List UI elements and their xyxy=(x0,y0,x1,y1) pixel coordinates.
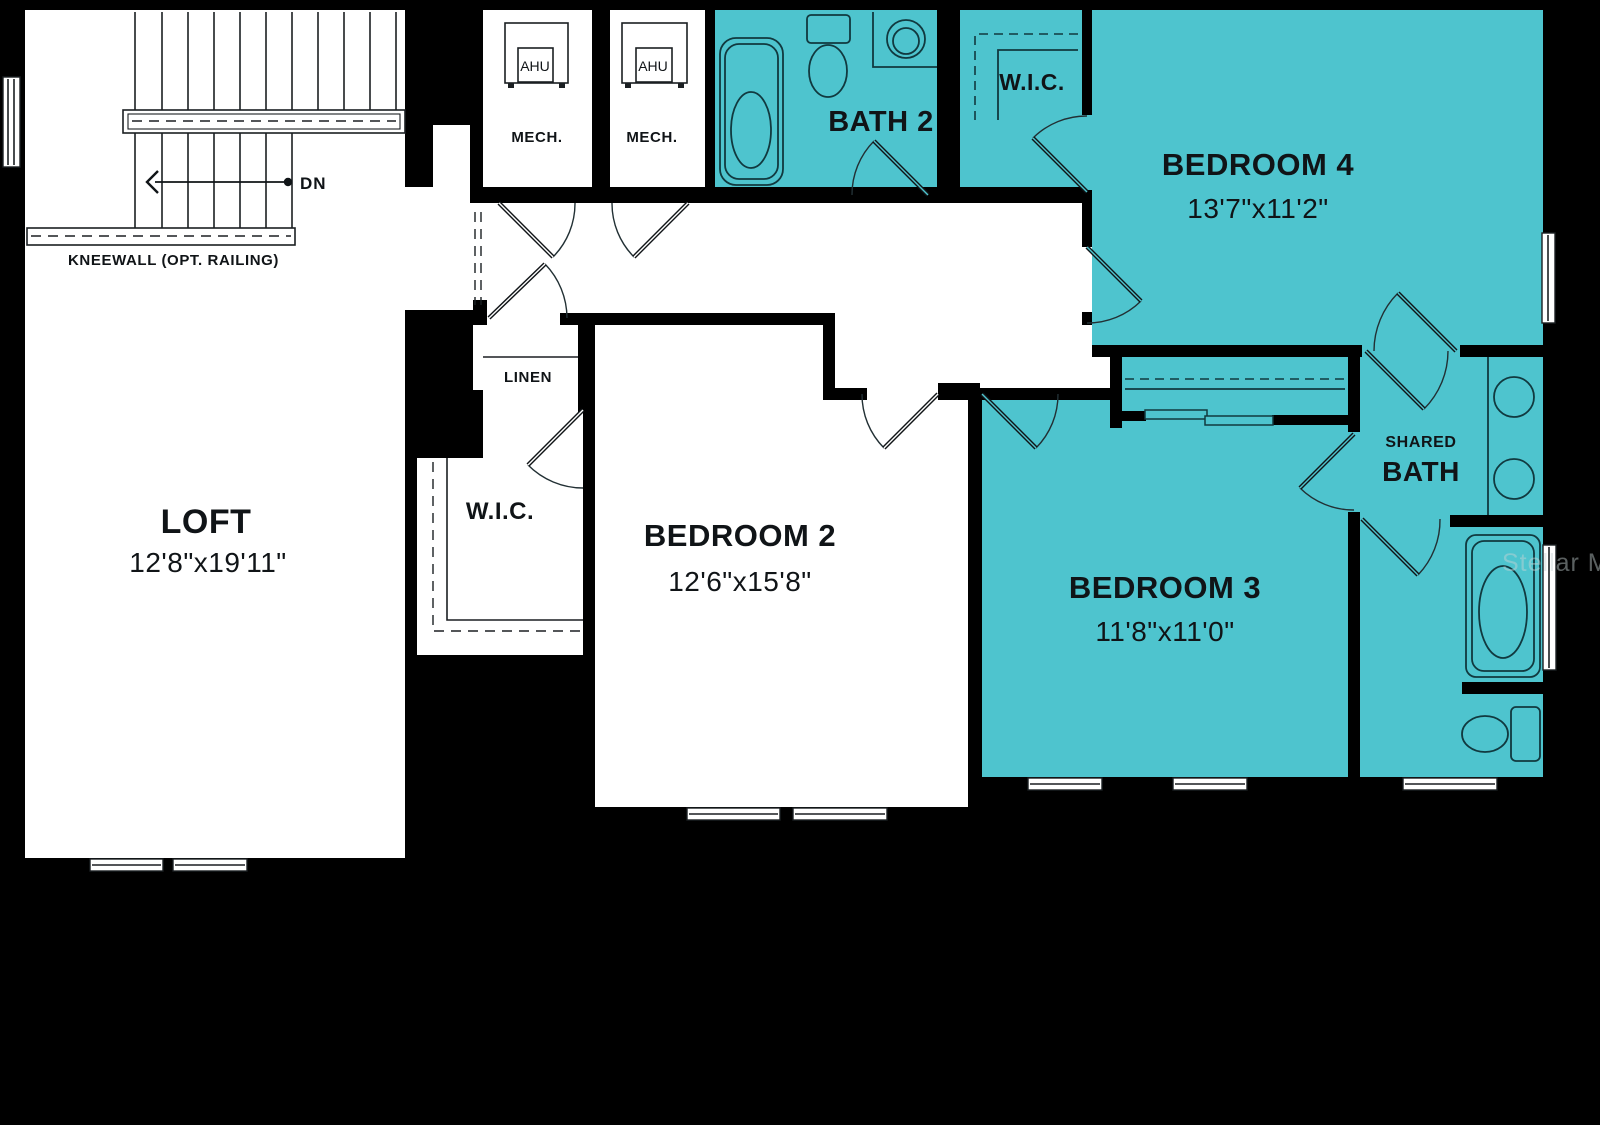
room-mech1 xyxy=(483,10,592,187)
kneewall-lower xyxy=(27,228,295,245)
window-bedroom4-right xyxy=(1542,233,1555,323)
ahu-1-label: AHU xyxy=(520,58,550,74)
mech1-name: MECH. xyxy=(511,129,562,146)
bath2-name: BATH 2 xyxy=(828,106,934,138)
window-bedroom3-1 xyxy=(1028,778,1102,790)
window-loft-1 xyxy=(90,859,163,871)
closet-bypass-door-1 xyxy=(1145,410,1207,419)
closet-door-jamb-left xyxy=(1122,411,1146,421)
kneewall-label: KNEEWALL (OPT. RAILING) xyxy=(68,252,279,269)
room-bath2 xyxy=(715,10,937,187)
bedroom4-dims: 13'7"x11'2" xyxy=(1187,193,1328,224)
closet-bypass-door-2 xyxy=(1205,416,1273,425)
shared-bath-line2: BATH xyxy=(1382,456,1460,487)
wic-bed2-name: W.I.C. xyxy=(466,498,534,525)
bedroom3-dims: 11'8"x11'0" xyxy=(1095,616,1234,647)
ahu-2-label: AHU xyxy=(638,58,668,74)
window-bath-toilet xyxy=(1403,778,1497,790)
room-wic-top xyxy=(960,10,1082,187)
bedroom3-bath-door-gap xyxy=(1348,432,1360,512)
stair-down-label: DN xyxy=(300,174,327,193)
bedroom4-name: BEDROOM 4 xyxy=(1162,147,1355,182)
wic-top-name: W.I.C. xyxy=(999,69,1065,95)
window-bedroom2-2 xyxy=(793,808,887,820)
bedroom2-dims: 12'6"x15'8" xyxy=(668,566,812,597)
linen-name: LINEN xyxy=(504,369,552,386)
hallway xyxy=(473,203,1082,325)
room-loft-stairwell xyxy=(25,10,405,858)
stair-landing-upper xyxy=(433,125,473,187)
loft-dims: 12'8"x19'11" xyxy=(129,547,287,578)
floorplan-canvas: DN KNEEWALL (OPT. RAILING) xyxy=(0,0,1600,1125)
window-bedroom2-1 xyxy=(687,808,780,820)
bedroom2-name: BEDROOM 2 xyxy=(644,518,836,553)
bedroom4-door-gap xyxy=(1082,247,1092,312)
wic-top-door-gap xyxy=(1082,115,1092,190)
loft-name: LOFT xyxy=(161,503,252,541)
shared-bath-line1: SHARED xyxy=(1385,434,1456,451)
stair-direction-dot xyxy=(284,178,292,186)
closet-door-jamb-right xyxy=(1272,415,1348,425)
room-wic-bed2 xyxy=(417,458,583,655)
kneewall-mid xyxy=(123,110,405,133)
window-loft-2 xyxy=(173,859,247,871)
stair-landing xyxy=(405,187,473,310)
window-stairwell-left xyxy=(3,77,20,167)
room-wic-bed2-entry xyxy=(483,410,583,458)
mech2-name: MECH. xyxy=(626,129,677,146)
watermark: Stellar MLS xyxy=(1502,549,1600,577)
linen-nook xyxy=(473,313,578,410)
window-bedroom3-2 xyxy=(1173,778,1247,790)
floorplan-page: DN KNEEWALL (OPT. RAILING) xyxy=(0,0,1600,1125)
room-mech2 xyxy=(610,10,705,187)
bedroom3-name: BEDROOM 3 xyxy=(1069,570,1261,605)
